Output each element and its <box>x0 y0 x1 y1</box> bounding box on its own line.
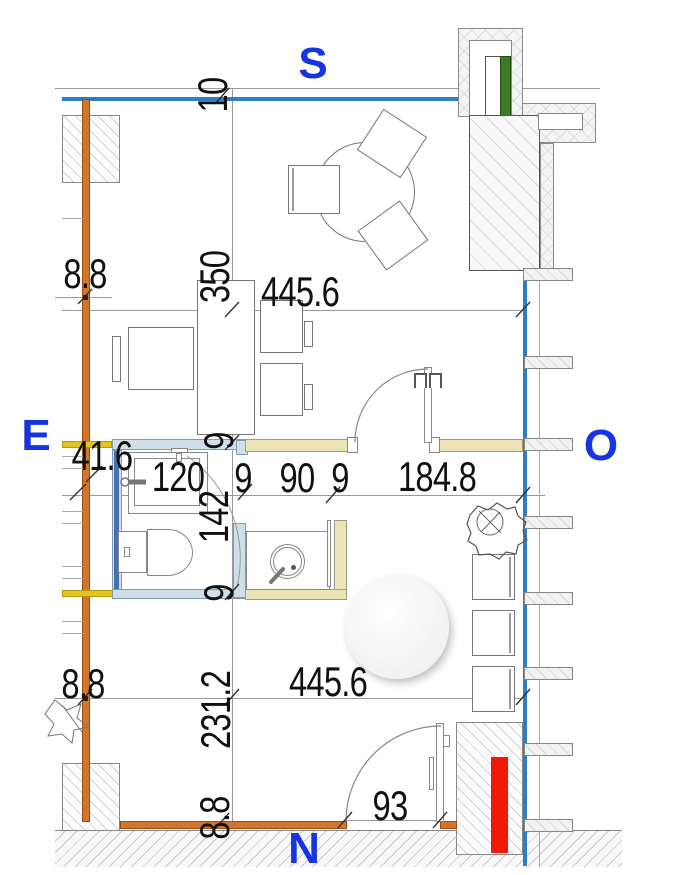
kitchen-sink-inner <box>273 547 302 576</box>
entrance-door-knob <box>443 735 450 747</box>
door-stop <box>429 373 442 388</box>
dim-upper-left: 8.8 <box>63 250 106 298</box>
desk-left-chair <box>112 336 121 382</box>
wall-tick <box>62 511 83 512</box>
plant-stem-icon <box>479 511 501 533</box>
shaft-bottom-right <box>456 722 523 855</box>
wall-tick <box>62 578 83 579</box>
floor-plan-canvas: 10 8.8 350 445.6 41.6 9 120 9 90 9 184.8… <box>0 0 680 875</box>
orange-wall-bottom-stub <box>440 821 457 829</box>
entry-column <box>469 115 540 271</box>
dim-door-width: 93 <box>373 782 408 830</box>
cream-wall-mid <box>245 439 352 452</box>
dim-top-gap: 10 <box>189 78 237 113</box>
desk-right-upper-chair <box>304 321 313 347</box>
dim-upper-height: 350 <box>191 251 239 303</box>
yellow-wall-bath-bottom <box>62 590 118 597</box>
box-edge <box>509 613 511 653</box>
kitchen-sink-drain <box>291 565 296 570</box>
dim-lower-width: 445.6 <box>289 658 367 706</box>
dim-bath-depth: 142 <box>190 491 238 543</box>
compass-north: N <box>288 824 320 874</box>
wall-tick <box>62 621 83 622</box>
desk-right-lower-chair <box>304 384 313 410</box>
balcony-bracket <box>524 743 573 756</box>
wall-tick <box>62 523 83 524</box>
dim-lower-height: 231.2 <box>192 671 240 749</box>
dim-base-wall: 8.8 <box>191 796 239 839</box>
balcony-bracket <box>524 356 573 369</box>
wall-tick <box>62 566 83 567</box>
balcony-bracket <box>524 516 573 529</box>
dining-chair <box>288 165 340 214</box>
balcony-bracket <box>524 667 573 680</box>
pillar-top-left <box>62 115 120 183</box>
balcony-bracket <box>524 819 573 832</box>
door-stop <box>414 373 427 388</box>
dim-wall-top: 9 <box>195 432 243 449</box>
desk-right-lower <box>260 363 303 416</box>
entrance-door-handle <box>429 757 434 790</box>
storage-box <box>472 610 515 656</box>
wall-tick <box>62 633 83 634</box>
storage-box <box>472 666 515 712</box>
wall-tick <box>62 218 83 219</box>
toilet-bowl <box>147 529 193 576</box>
compass-west: O <box>584 421 618 471</box>
blue-water-line-top <box>62 97 458 101</box>
plant-inner-icon <box>477 509 503 535</box>
wardrobe <box>197 280 255 435</box>
kitchen-wall-right <box>334 520 347 599</box>
chair-backrest <box>292 168 294 211</box>
balcony-bracket <box>524 592 573 605</box>
dim-upper-width: 445.6 <box>261 268 339 316</box>
dim-living-width: 184.8 <box>398 453 476 501</box>
dim-wall-bottom: 9 <box>195 584 243 601</box>
plant-stem-icon <box>481 512 500 532</box>
storage-box <box>472 554 515 600</box>
compass-south: S <box>298 39 327 89</box>
entry-slot <box>538 113 583 130</box>
dim-partition-2: 9 <box>331 454 348 502</box>
toilet-flush-button <box>124 547 130 557</box>
desk-left <box>128 327 194 390</box>
entry-structure-right-band <box>540 143 554 271</box>
compass-east: E <box>21 411 50 461</box>
red-marker-bar <box>491 757 508 853</box>
door-jamb <box>347 437 358 453</box>
balcony-bracket <box>524 438 573 451</box>
plant-stem-icon <box>62 705 82 732</box>
box-edge <box>509 669 511 709</box>
box-edge <box>509 557 511 597</box>
balcony-bracket <box>523 268 573 281</box>
dim-opening: 90 <box>280 454 315 502</box>
pillar-bottom-left <box>62 763 120 831</box>
window-green-bar <box>500 56 511 117</box>
plant-icon <box>467 503 527 559</box>
cream-wall-right <box>429 439 523 452</box>
dim-entry: 41.6 <box>72 432 133 480</box>
kitchen-panel <box>327 520 331 587</box>
kitchen-wall-bottom <box>245 589 347 600</box>
dim-lower-left: 8.8 <box>61 660 104 708</box>
toilet-tank <box>118 531 147 573</box>
perimeter-hatch-strip <box>55 830 622 867</box>
